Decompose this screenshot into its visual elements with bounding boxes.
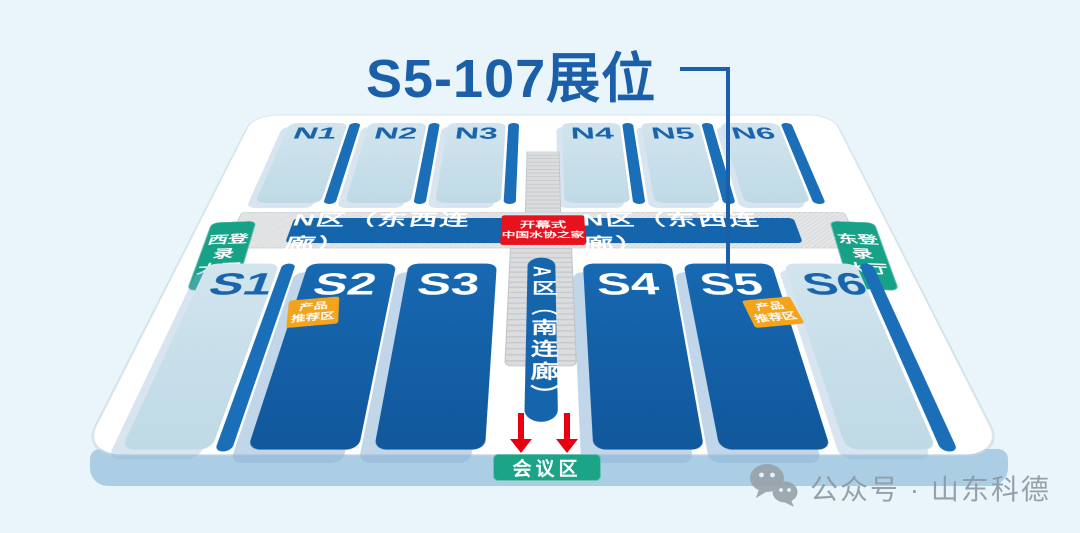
corridor-label-east: N区（东西连廊） <box>582 218 803 243</box>
leader-line-horizontal <box>680 67 730 71</box>
hall-n1: N1 <box>255 123 348 203</box>
hall-s6-label: S6 <box>784 264 873 303</box>
product-zone-badge-s2: 产品 推荐区 <box>286 296 339 328</box>
conference-area-badge: 会议区 <box>493 454 601 481</box>
product-badge-line2: 推荐区 <box>290 310 335 325</box>
leader-line-vertical <box>726 67 730 275</box>
east-hall-line1: 东登 <box>836 232 881 248</box>
west-hall-line2: 录 <box>210 246 235 261</box>
south-corridor-label: A区（南连廊） <box>520 266 563 409</box>
hall-n4-label: N4 <box>562 123 622 143</box>
east-hall-line2: 录 <box>850 246 875 261</box>
west-hall-line1: 西登 <box>205 232 250 248</box>
opening-badge-line1: 开幕式 <box>520 220 567 230</box>
hall-n6: N6 <box>720 123 810 203</box>
hall-s2-label: S2 <box>296 264 397 303</box>
watermark: 公众号 · 山东科德 <box>748 462 1051 513</box>
south-corridor: A区（南连廊） <box>524 258 558 422</box>
north-stairway <box>525 152 561 213</box>
hall-n3-label: N3 <box>445 123 506 143</box>
down-arrow-icon <box>507 413 535 453</box>
hall-n2: N2 <box>345 123 427 203</box>
product-badge-line2: 推荐区 <box>752 310 799 325</box>
hall-n5-label: N5 <box>641 123 704 143</box>
down-arrow-icon <box>553 413 581 453</box>
watermark-text: 公众号 · 山东科德 <box>810 468 1051 508</box>
opening-badge-line2: 中国水协之家 <box>501 230 584 239</box>
hall-s3: S3 <box>374 264 497 450</box>
hall-n4: N4 <box>562 123 630 203</box>
hall-s4-label: S4 <box>583 264 678 303</box>
corridor-label-west: N区（东西连廊） <box>285 218 506 243</box>
booth-title: S5-107展位 <box>366 34 656 113</box>
hall-s4: S4 <box>583 264 704 450</box>
hall-s3-label: S3 <box>401 264 496 303</box>
exhibition-floorplan-scene: S5-107展位 N1 N2 N3 N4 N5 N6 N区（东西连廊） N区（东… <box>0 0 1080 533</box>
hall-s5-label: S5 <box>683 264 784 303</box>
hall-n2-label: N2 <box>363 123 427 143</box>
hall-n6-label: N6 <box>720 123 786 143</box>
hall-n3: N3 <box>435 123 506 203</box>
product-zone-badge-s5: 产品 推荐区 <box>742 296 805 328</box>
hall-n1-label: N1 <box>281 123 347 143</box>
opening-ceremony-badge: 开幕式 中国水协之家 <box>500 215 586 245</box>
hall-n5: N5 <box>641 123 720 203</box>
wechat-icon <box>748 462 800 513</box>
floorplan-panel: N1 N2 N3 N4 N5 N6 N区（东西连廊） N区（东西连廊） 开幕式 … <box>82 115 1003 454</box>
